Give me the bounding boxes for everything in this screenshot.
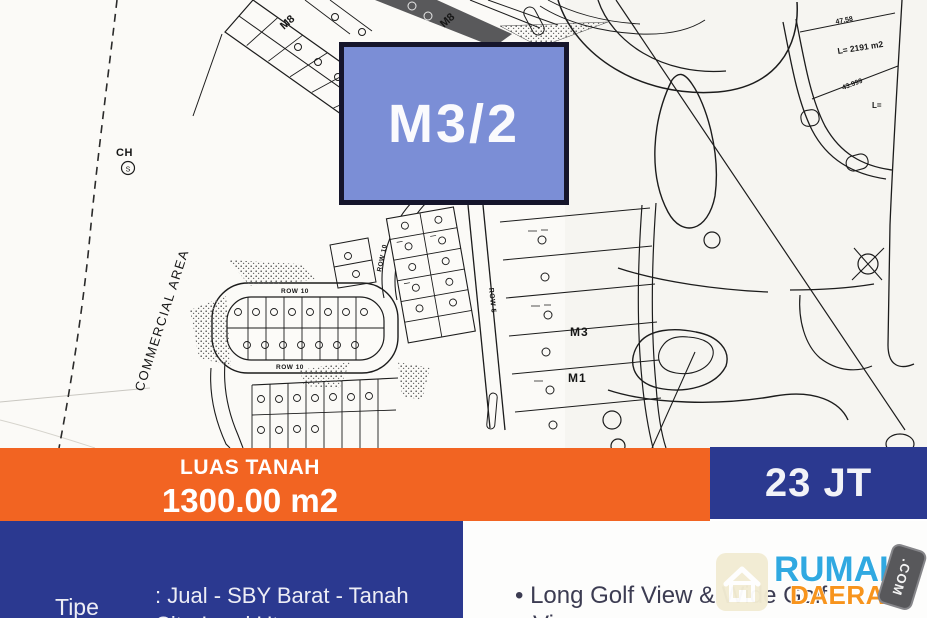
land-area-value: 1300.00 m2 <box>90 482 410 519</box>
map-label-row10-top: ROW 10 <box>281 288 309 295</box>
map-label-m1: M1 <box>568 371 587 385</box>
type-value-line1: : Jual - SBY Barat - Tanah <box>155 581 409 610</box>
map-paper-right-tint <box>565 0 927 448</box>
type-value-line2: CitraLand Uta <box>155 610 409 618</box>
land-area-banner: LUAS TANAH 1300.00 m2 <box>0 448 710 521</box>
listing-image: CH S COMMERCIAL AREA M8 <box>0 0 927 618</box>
type-value: : Jual - SBY Barat - Tanah CitraLand Uta <box>155 581 409 618</box>
type-label: Tipe <box>55 594 99 618</box>
land-area-label: LUAS TANAH <box>90 456 410 480</box>
map-label-ch-s: S <box>126 167 131 174</box>
plot-badge-label: M3/2 <box>388 93 520 155</box>
map-label-ch: CH <box>116 147 133 159</box>
price-banner: 23 JT <box>710 447 927 519</box>
brand-logo: RUMAH DAERAH .COM <box>700 543 927 618</box>
features-line2: View <box>533 611 585 618</box>
com-stamp-label: .COM <box>889 557 914 598</box>
price-value: 23 JT <box>765 461 872 506</box>
map-area-l: L= <box>872 101 882 110</box>
map-label-row10-bottom: ROW 10 <box>276 364 304 371</box>
house-icon <box>716 553 768 611</box>
plot-badge: M3/2 <box>339 42 569 205</box>
property-type-panel: Tipe : Jual - SBY Barat - Tanah CitraLan… <box>0 521 463 618</box>
map-label-m3: M3 <box>570 325 589 339</box>
